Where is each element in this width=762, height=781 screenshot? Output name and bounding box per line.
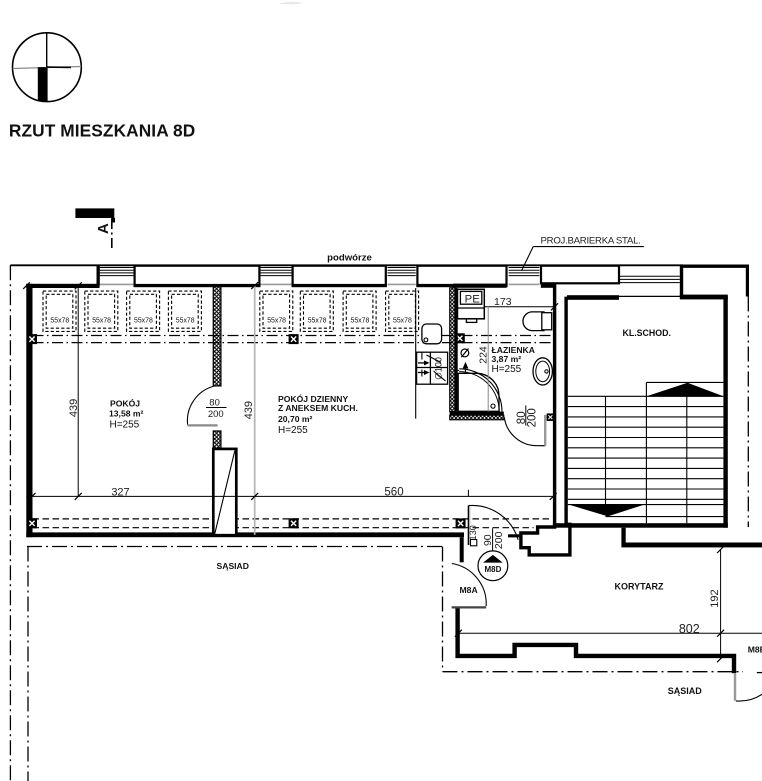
svg-text:439: 439 <box>68 399 80 417</box>
svg-text:13,58 m²: 13,58 m² <box>109 409 144 419</box>
svg-text:M8A: M8A <box>460 585 478 595</box>
svg-text:SĄSIAD: SĄSIAD <box>668 686 703 696</box>
svg-text:H=255: H=255 <box>110 419 140 430</box>
svg-text:224: 224 <box>477 346 489 364</box>
svg-text:M8B: M8B <box>748 645 762 655</box>
svg-text:∅100: ∅100 <box>434 357 444 380</box>
svg-text:3,87 m²: 3,87 m² <box>492 354 522 364</box>
svg-text:55x78: 55x78 <box>92 317 111 324</box>
svg-text:A: A <box>95 223 112 234</box>
svg-text:H=255: H=255 <box>492 364 522 375</box>
svg-text:327: 327 <box>111 486 129 498</box>
svg-text:55x78: 55x78 <box>134 317 153 324</box>
svg-text:90: 90 <box>482 534 494 546</box>
svg-text:173: 173 <box>494 296 512 308</box>
svg-text:55x78: 55x78 <box>50 317 69 324</box>
svg-text:KL.SCHOD.: KL.SCHOD. <box>623 328 671 338</box>
svg-text:RZUT MIESZKANIA 8D: RZUT MIESZKANIA 8D <box>9 120 195 140</box>
svg-text:192: 192 <box>709 589 721 607</box>
svg-text:Z ANEKSEM KUCH.: Z ANEKSEM KUCH. <box>278 403 358 413</box>
svg-text:podwórze: podwórze <box>327 252 372 263</box>
svg-text:POKÓJ: POKÓJ <box>110 397 140 408</box>
svg-text:200: 200 <box>493 531 505 549</box>
svg-text:130: 130 <box>468 525 478 540</box>
svg-text:55x78: 55x78 <box>308 317 327 324</box>
svg-text:PROJ.BARIERKA STAL.: PROJ.BARIERKA STAL. <box>541 236 641 247</box>
svg-text:802: 802 <box>679 622 700 636</box>
svg-text:KORYTARZ: KORYTARZ <box>615 582 664 592</box>
svg-text:200: 200 <box>208 409 224 420</box>
svg-text:200: 200 <box>527 408 539 427</box>
svg-text:80: 80 <box>209 397 220 408</box>
svg-text:55x78: 55x78 <box>176 317 195 324</box>
svg-text:M8D: M8D <box>484 565 501 574</box>
svg-text:20,70 m²: 20,70 m² <box>278 414 313 424</box>
svg-text:PE: PE <box>465 293 481 305</box>
svg-text:55x78: 55x78 <box>393 317 412 324</box>
svg-text:55x78: 55x78 <box>267 317 286 324</box>
svg-text:SĄSIAD: SĄSIAD <box>217 561 249 571</box>
svg-text:55x78: 55x78 <box>351 317 370 324</box>
svg-text:439: 439 <box>243 401 255 419</box>
svg-text:H=255: H=255 <box>278 425 308 436</box>
svg-text:560: 560 <box>384 487 403 499</box>
